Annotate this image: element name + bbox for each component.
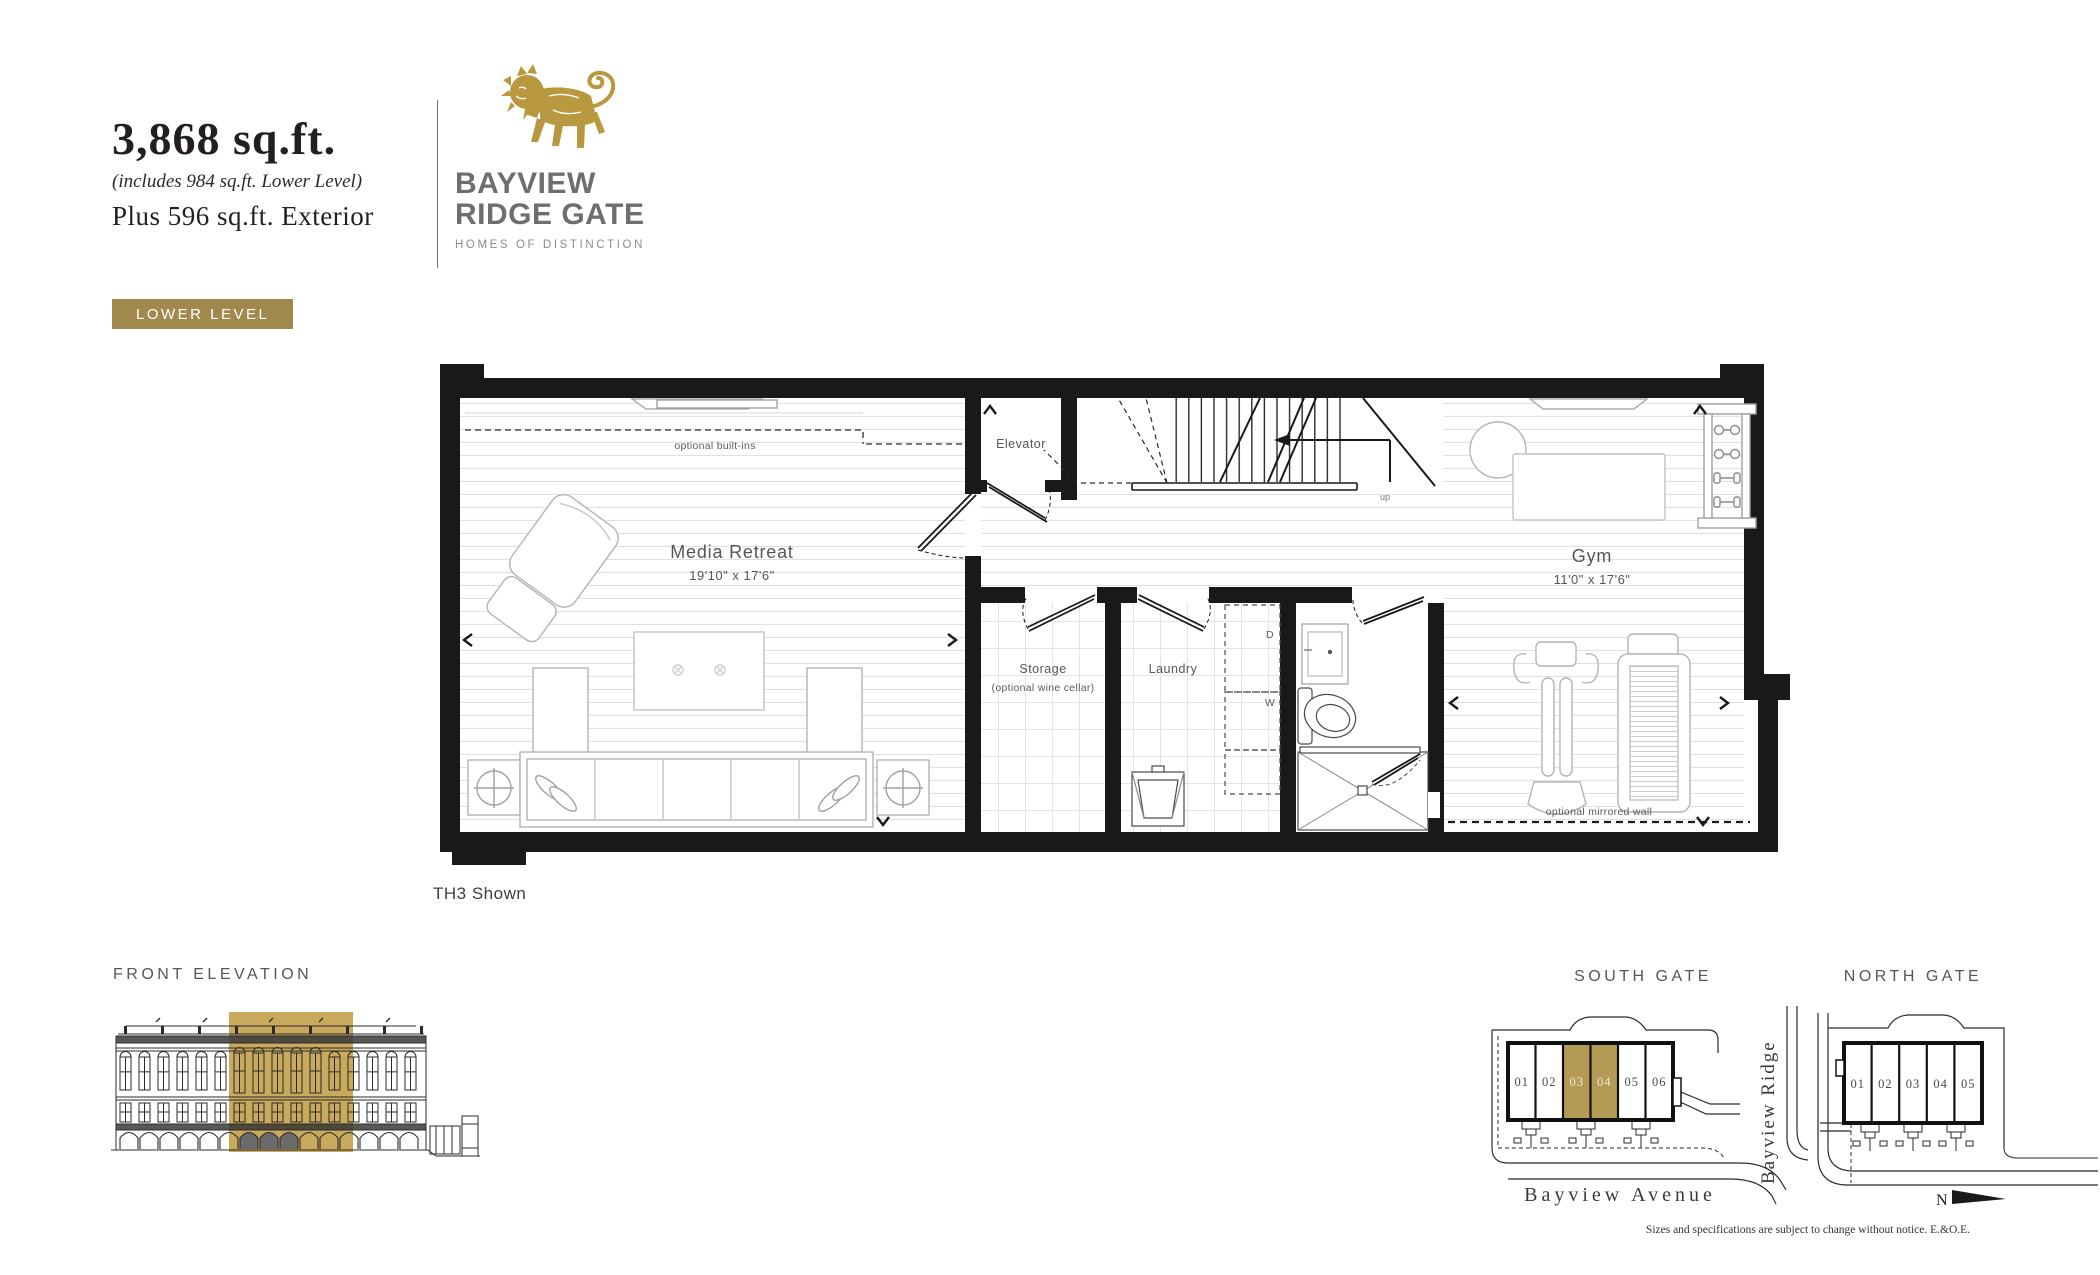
north-porches (1853, 1123, 1973, 1151)
storage-note: (optional wine cellar) (992, 682, 1095, 694)
gym-label: Gym (1572, 546, 1612, 566)
dryer-label: D (1266, 629, 1274, 641)
south-unit-05: 05 (1624, 1075, 1639, 1089)
north-gate-title: NORTH GATE (1808, 968, 2018, 986)
brand-line1: BAYVIEW (455, 168, 715, 199)
vertical-divider (437, 100, 438, 268)
total-area: 3,868 sq.ft. (112, 112, 442, 165)
area-note: (includes 984 sq.ft. Lower Level) (112, 171, 442, 193)
south-unit-01: 01 (1514, 1075, 1529, 1089)
compass-arrow-icon (1952, 1190, 2006, 1204)
north-unit-03: 03 (1906, 1077, 1921, 1091)
brand-block: BAYVIEW RIDGE GATE HOMES OF DISTINCTION (455, 60, 715, 251)
south-unit-06: 06 (1652, 1075, 1667, 1089)
north-units: 01 02 03 04 05 (1836, 1043, 1982, 1123)
north-unit-05: 05 (1961, 1077, 1976, 1091)
street-bayview-avenue: Bayview Avenue (1475, 1184, 1765, 1207)
front-elevation-drawing (106, 1004, 508, 1176)
unit-shown-label: TH3 Shown (433, 884, 526, 904)
south-gate-title: SOUTH GATE (1478, 968, 1808, 986)
staircase: up (1044, 398, 1435, 502)
exterior-area: Plus 596 sq.ft. Exterior (112, 201, 442, 232)
builtins-label: optional built-ins (674, 440, 755, 452)
south-units: 01 02 03 04 05 06 (1508, 1043, 1681, 1120)
north-unit-04: 04 (1933, 1077, 1948, 1091)
washer-label: W (1265, 697, 1275, 709)
treadmill (1618, 634, 1690, 812)
south-unit-04: 04 (1597, 1075, 1612, 1089)
north-gate-siteplan: 01 02 03 04 05 N (1808, 998, 2100, 1214)
storage-label: Storage (1019, 662, 1066, 676)
north-unit-02: 02 (1878, 1077, 1893, 1091)
legal-disclaimer: Sizes and specifications are subject to … (1638, 1224, 1978, 1236)
bath-fixtures (1298, 624, 1440, 830)
mirror-label: optional mirrored wall (1546, 806, 1652, 818)
brand-tagline: HOMES OF DISTINCTION (455, 239, 715, 251)
laundry-label: Laundry (1149, 662, 1198, 676)
elevator-label: Elevator (996, 437, 1046, 451)
south-porches (1514, 1120, 1658, 1148)
south-unit-02: 02 (1542, 1075, 1557, 1089)
level-badge: LOWER LEVEL (112, 299, 293, 329)
front-elevation-title: FRONT ELEVATION (113, 966, 312, 984)
floor-plan-drawing: up (432, 352, 1792, 877)
street-bayview-ridge: Bayview Ridge (1758, 1016, 1780, 1184)
gym-dims: 11'0" x 17'6" (1554, 572, 1631, 587)
brochure-page: 3,868 sq.ft. (includes 984 sq.ft. Lower … (0, 0, 2100, 1275)
south-unit-03: 03 (1569, 1075, 1584, 1089)
compass-n-label: N (1936, 1192, 1948, 1209)
north-arrow: N (1936, 1190, 2006, 1209)
stairs-up-label: up (1380, 492, 1390, 502)
brand-wordmark: BAYVIEW RIDGE GATE (455, 168, 715, 230)
area-stats: 3,868 sq.ft. (includes 984 sq.ft. Lower … (112, 112, 442, 232)
media-retreat-dims: 19'10" x 17'6" (689, 568, 775, 583)
media-retreat-label: Media Retreat (670, 542, 793, 562)
brand-line2: RIDGE GATE (455, 199, 715, 230)
lion-crest-icon (497, 60, 629, 160)
north-unit-01: 01 (1851, 1077, 1866, 1091)
